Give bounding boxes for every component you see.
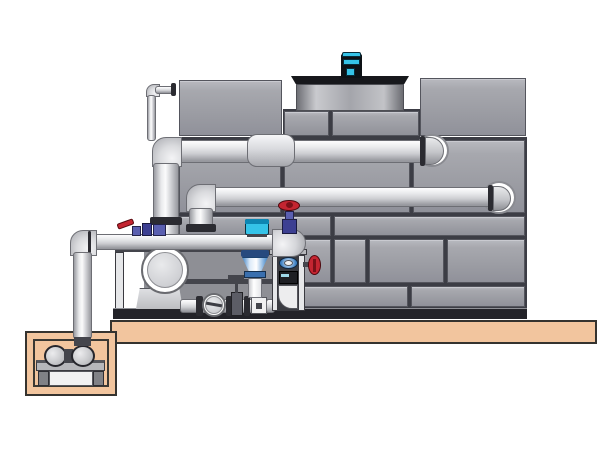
cooling-tower-piping-diagram	[0, 0, 600, 450]
riser-control-box-stripe	[281, 274, 289, 277]
sump-drop-pipe-collar	[74, 337, 91, 346]
tower-panel	[411, 286, 525, 307]
tower-panel-band-right	[332, 111, 419, 136]
tower-panel-top-right	[420, 78, 526, 136]
upper-header-pipe	[172, 140, 430, 163]
main-pump-face	[147, 252, 183, 288]
control-valve-ring	[244, 271, 266, 278]
manifold-gate-valve-handle	[228, 275, 244, 279]
manifold-gate-valve-stem	[235, 279, 238, 293]
control-valve-top-flange	[241, 250, 269, 257]
manifold-gate-valve-body	[231, 292, 243, 316]
control-valve-drop-pipe	[248, 278, 262, 298]
gate-valve-body-top	[282, 219, 297, 234]
makeup-pipe-wall-flange	[171, 83, 176, 96]
sump-pump-box	[49, 371, 93, 386]
sump-pump-leg-left	[38, 371, 49, 386]
tower-panel	[334, 239, 366, 283]
manifold-flange-3	[244, 296, 250, 316]
riser-control-box	[279, 271, 298, 284]
fan-cowl-drum	[296, 84, 404, 111]
tower-panel	[447, 239, 525, 283]
lower-elbow-flange-line	[88, 231, 91, 253]
makeup-pipe-vertical	[147, 95, 156, 141]
sump-pump-bell-right	[71, 345, 95, 367]
bypass-ball-valve-body	[132, 226, 141, 236]
side-valve-hub	[313, 259, 316, 272]
tower-panel	[334, 216, 525, 236]
gate-valve-bonnet	[285, 211, 294, 220]
platform-slab	[110, 320, 597, 344]
control-valve-actuator-lid	[245, 219, 269, 224]
middle-header-pipe	[206, 187, 492, 207]
bypass-valve-union	[153, 224, 166, 236]
fan-motor-window	[346, 68, 355, 76]
middle-riser-flange	[186, 224, 216, 232]
sump-drop-pipe	[73, 252, 92, 339]
tower-panel-top-left	[179, 80, 282, 136]
bypass-valve-block	[142, 223, 152, 236]
fan-motor-cap	[342, 52, 361, 57]
fan-motor-band	[343, 59, 360, 65]
pump-skid-left-column	[115, 252, 124, 310]
sump-pump-leg-right	[93, 371, 104, 386]
upper-header-coupling	[247, 134, 295, 167]
riser-sight-glass-center	[284, 260, 293, 266]
tower-panel	[369, 239, 444, 283]
tower-panel-band-left	[284, 111, 329, 136]
manifold-union-bolt	[256, 303, 262, 309]
gate-valve-hub	[286, 202, 293, 208]
control-valve-actuator-base	[247, 234, 267, 237]
